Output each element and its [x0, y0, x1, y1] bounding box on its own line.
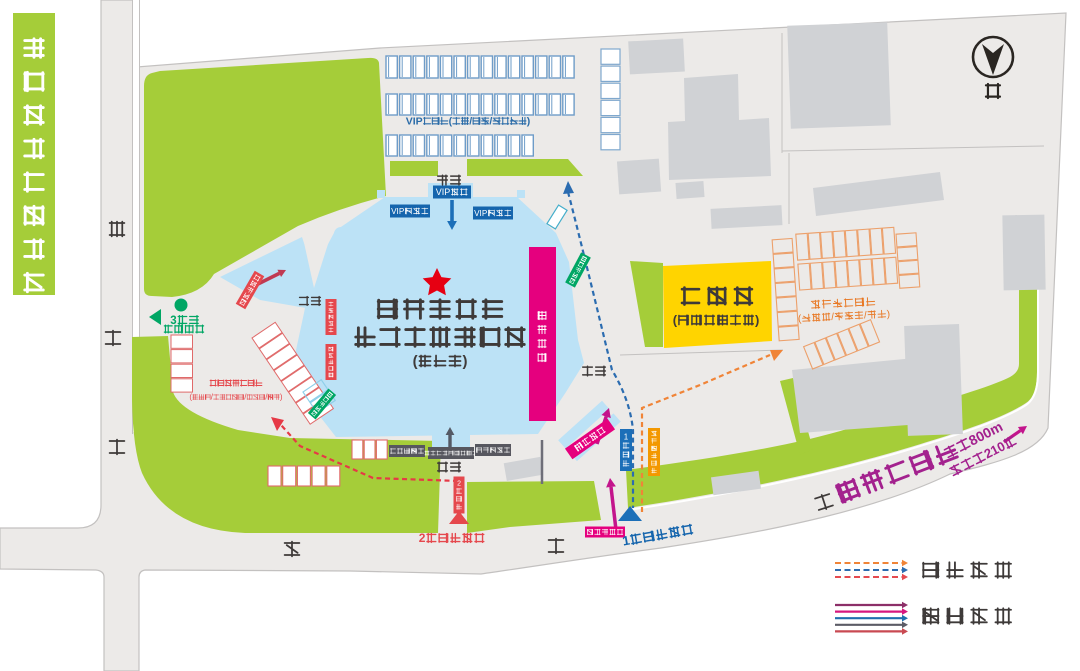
svg-text:(: ( [189, 393, 192, 402]
svg-text:2: 2 [457, 481, 461, 488]
svg-text:2: 2 [419, 531, 426, 545]
svg-text:3: 3 [170, 315, 176, 327]
svg-text:): ) [527, 116, 531, 128]
svg-text:): ) [887, 309, 891, 320]
svg-text:(: ( [449, 116, 453, 128]
svg-text:VIP: VIP [406, 116, 423, 128]
svg-text:1: 1 [624, 432, 629, 441]
svg-text:(: ( [413, 353, 418, 370]
svg-text:VIP: VIP [436, 187, 451, 197]
svg-text:(: ( [673, 312, 678, 327]
svg-text:/: / [489, 116, 492, 128]
svg-text:/: / [469, 116, 472, 128]
svg-text:VIP: VIP [474, 209, 488, 218]
svg-text:): ) [755, 312, 759, 327]
svg-text:): ) [463, 353, 468, 370]
svg-text:): ) [280, 393, 283, 402]
svg-text:VIP: VIP [391, 207, 405, 216]
